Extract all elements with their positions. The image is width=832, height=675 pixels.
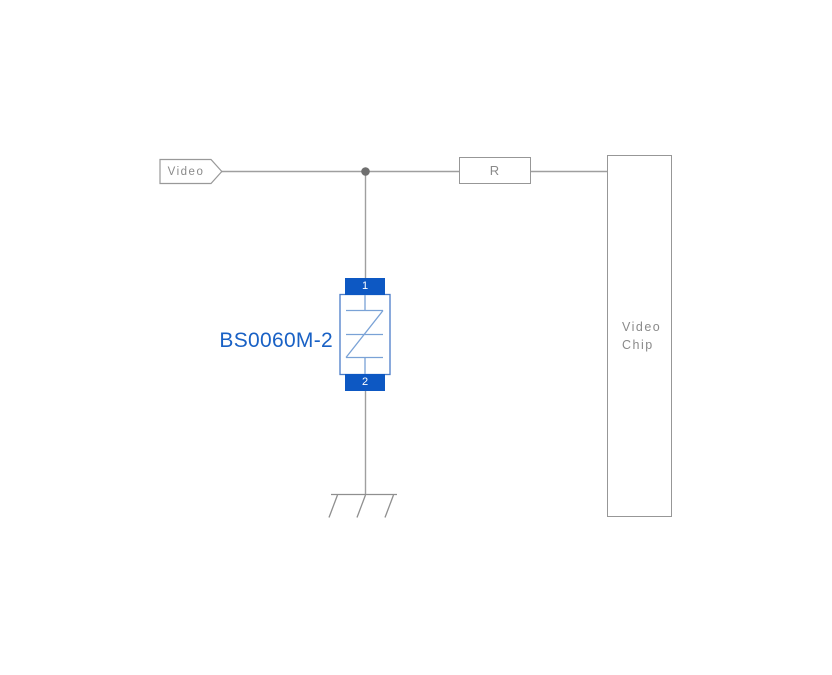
tvs-diode-symbol xyxy=(340,295,390,375)
tvs-part-number: BS0060M-2 xyxy=(168,328,333,353)
tvs-pin1-pad: 1 xyxy=(345,278,385,295)
video-net-label: Video xyxy=(160,160,212,183)
resistor-label: R xyxy=(490,163,500,178)
schematic-drawing xyxy=(0,0,832,675)
video-chip-label: Video Chip xyxy=(622,318,671,354)
schematic-canvas: Video R Video Chip 1 2 BS0060M-2 xyxy=(0,0,832,675)
resistor-box: R xyxy=(459,157,531,184)
ground-icon xyxy=(329,495,397,518)
junction-dot xyxy=(361,167,370,176)
tvs-pin2-pad: 2 xyxy=(345,374,385,391)
video-chip-box: Video Chip xyxy=(607,155,672,517)
